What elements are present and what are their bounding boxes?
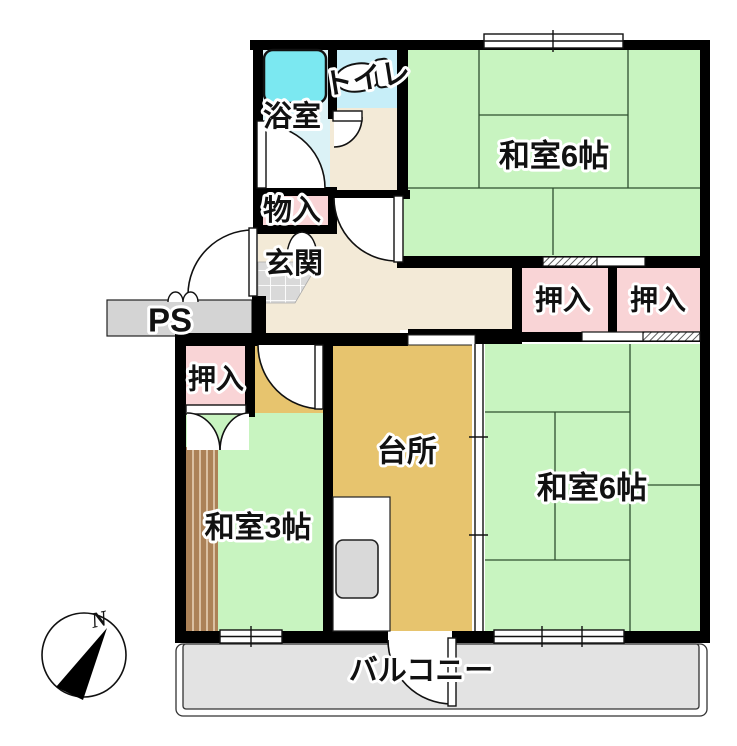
japanese-room-6-upper-label: 和室6帖 xyxy=(499,139,609,174)
compass-needle-icon xyxy=(56,628,107,700)
entrance-door xyxy=(168,228,257,302)
bathroom-label: 浴室 xyxy=(263,99,321,133)
bathtub-icon xyxy=(264,50,326,103)
wall-segment xyxy=(475,329,522,344)
wall-segment xyxy=(250,40,710,50)
compass-north-label: N xyxy=(88,605,111,633)
door-leaf xyxy=(315,345,323,409)
wall-segment xyxy=(608,260,617,340)
door-swing-area xyxy=(188,230,253,295)
kitchen-label: 台所 xyxy=(377,435,437,469)
closet-door-bar xyxy=(186,405,246,414)
wall-segment xyxy=(323,333,333,643)
fusuma-upper xyxy=(543,257,645,266)
hall-arm-floor xyxy=(397,263,517,330)
fusuma-panel-hatched xyxy=(543,257,597,266)
fusuma-panel-hatched xyxy=(643,332,700,341)
wall-segment xyxy=(175,333,408,346)
fusuma-lower xyxy=(582,332,700,341)
door-leaf xyxy=(333,111,362,121)
wall-segment xyxy=(175,333,186,643)
storage-label: 物入 xyxy=(263,194,321,227)
pipe-space-label: PS xyxy=(148,302,192,339)
kitchen-threshold xyxy=(408,335,475,345)
floor-plan-canvas: N 浴室 トイレ 物入 玄関 PS 押入 押入 押入 台所 和室3帖 和室6帖 … xyxy=(0,0,737,746)
compass: N xyxy=(42,605,126,700)
kitchen-counter xyxy=(333,497,390,631)
japanese-room-3-label: 和室3帖 xyxy=(205,511,312,545)
sink-icon xyxy=(336,540,378,598)
closet-hall-label: 押入 xyxy=(188,363,244,395)
door-leaf xyxy=(249,228,257,296)
wall-segment xyxy=(408,329,478,335)
wall-segment xyxy=(512,256,522,341)
closet-right-label: 押入 xyxy=(630,284,686,316)
floor-plan-page: N 浴室 トイレ 物入 玄関 PS 押入 押入 押入 台所 和室3帖 和室6帖 … xyxy=(0,0,737,746)
closet-center-label: 押入 xyxy=(535,284,591,316)
japanese-room-6-right-label: 和室6帖 xyxy=(537,471,647,506)
entrance-label: 玄関 xyxy=(265,246,323,280)
door-leaf xyxy=(394,196,403,262)
balcony-label: バルコニー xyxy=(349,655,493,687)
door-stop-symbol xyxy=(168,292,198,302)
